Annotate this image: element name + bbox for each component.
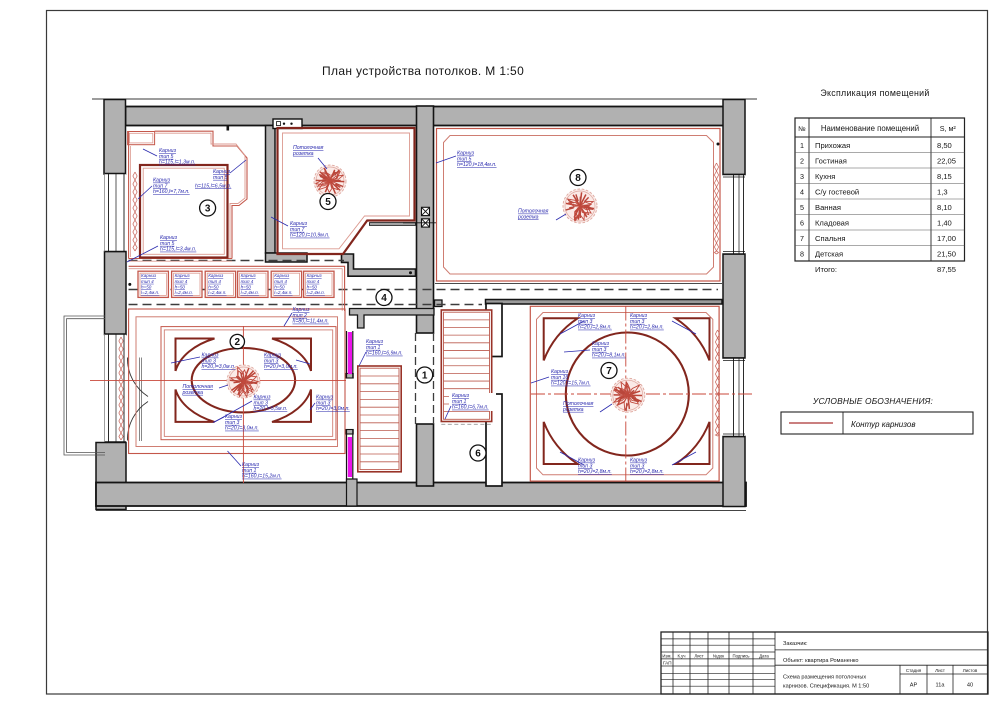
svg-text:Схема размещения потолочных: Схема размещения потолочных	[783, 675, 866, 681]
svg-text:Контур карнизов: Контур карнизов	[851, 420, 916, 429]
svg-text:1,3: 1,3	[937, 188, 948, 197]
svg-text:h=20,l=2,8м.п.: h=20,l=2,8м.п.	[578, 325, 612, 331]
svg-text:11а: 11а	[936, 683, 946, 689]
svg-text:h=50: h=50	[175, 284, 186, 289]
svg-text:8,15: 8,15	[937, 172, 952, 181]
svg-text:1: 1	[800, 141, 804, 150]
svg-text:УСЛОВНЫЕ ОБОЗНАЧЕНИЯ:: УСЛОВНЫЕ ОБОЗНАЧЕНИЯ:	[812, 396, 933, 406]
svg-text:h=20,l=3,0м.п.: h=20,l=3,0м.п.	[316, 406, 350, 412]
svg-text:7: 7	[606, 366, 612, 377]
svg-text:6: 6	[475, 448, 481, 459]
svg-text:Ванная: Ванная	[815, 203, 841, 212]
svg-text:h=160,l=6,9м.п.: h=160,l=6,9м.п.	[366, 351, 403, 357]
svg-text:h=120,l=15,7м.п.: h=120,l=15,7м.п.	[551, 381, 591, 387]
svg-text:Карниз: Карниз	[241, 273, 257, 278]
svg-text:розетка: розетка	[182, 390, 204, 396]
svg-text:тип 5: тип 5	[213, 175, 228, 181]
svg-text:h=20,l=2,8м.п.: h=20,l=2,8м.п.	[578, 469, 612, 475]
svg-text:3: 3	[800, 172, 804, 181]
svg-text:Спальня: Спальня	[815, 234, 846, 243]
svg-text:Дата: Дата	[759, 653, 769, 658]
svg-text:87,55: 87,55	[937, 265, 956, 274]
svg-text:2: 2	[235, 337, 241, 348]
svg-text:h=50: h=50	[241, 284, 252, 289]
svg-text:Наименование помещений: Наименование помещений	[821, 124, 919, 133]
svg-text:Лист: Лист	[935, 668, 945, 673]
svg-text:h=50: h=50	[208, 284, 219, 289]
svg-text:l=2,4м.п.: l=2,4м.п.	[274, 290, 292, 295]
svg-text:h=120,l=18,4м.п.: h=120,l=18,4м.п.	[457, 162, 497, 168]
svg-text:l=2,4м.п.: l=2,4м.п.	[307, 290, 325, 295]
svg-text:h=160,l=6,7м.п.: h=160,l=6,7м.п.	[452, 405, 489, 411]
svg-text:розетка: розетка	[517, 214, 539, 220]
svg-text:4: 4	[800, 188, 804, 197]
svg-text:8,10: 8,10	[937, 203, 952, 212]
svg-text:h=20,l=8,1м.п.: h=20,l=8,1м.п.	[592, 353, 626, 359]
svg-text:h=80,l=11,4м.п.: h=80,l=11,4м.п.	[293, 319, 329, 325]
svg-text:h=20,l=3,0м.п.: h=20,l=3,0м.п.	[202, 364, 236, 370]
svg-text:h=20,l=3,0м.п.: h=20,l=3,0м.п.	[225, 426, 259, 432]
svg-text:S, м²: S, м²	[940, 124, 957, 133]
svg-text:40: 40	[967, 683, 973, 689]
svg-text:Прихожая: Прихожая	[815, 141, 850, 150]
svg-text:h=115,l=3,4м.п.: h=115,l=3,4м.п.	[160, 247, 196, 253]
svg-text:22,05: 22,05	[937, 157, 956, 166]
svg-text:Итого:: Итого:	[815, 265, 837, 274]
svg-text:8: 8	[800, 250, 804, 259]
svg-text:тип 4: тип 4	[141, 279, 154, 284]
svg-text:тип 4: тип 4	[307, 279, 320, 284]
svg-text:розетка: розетка	[292, 151, 314, 157]
svg-text:h=50: h=50	[141, 284, 152, 289]
svg-text:Детская: Детская	[815, 250, 843, 259]
svg-text:h=20,l=2,8м.п.: h=20,l=2,8м.п.	[630, 325, 664, 331]
svg-text:тип 4: тип 4	[208, 279, 221, 284]
svg-text:тип 4: тип 4	[241, 279, 254, 284]
svg-text:h=20,l=5,5м.п.: h=20,l=5,5м.п.	[254, 406, 288, 412]
svg-text:Кухня: Кухня	[815, 172, 835, 181]
svg-text:h=50: h=50	[274, 284, 285, 289]
svg-text:карнизов. Спецификация. М 1:50: карнизов. Спецификация. М 1:50	[783, 684, 869, 690]
svg-text:ГАП: ГАП	[663, 661, 672, 666]
svg-text:h=115,l=1,3м.п.: h=115,l=1,3м.п.	[159, 160, 195, 166]
svg-text:h=20,l=3,0м.п.: h=20,l=3,0м.п.	[264, 364, 298, 370]
svg-text:h=160,l=15,2м.п.: h=160,l=15,2м.п.	[242, 474, 282, 480]
svg-text:5: 5	[800, 203, 804, 212]
svg-text:Карниз: Карниз	[307, 273, 323, 278]
svg-text:№док: №док	[713, 653, 725, 658]
svg-text:Карниз: Карниз	[208, 273, 224, 278]
svg-text:Лист: Лист	[694, 653, 703, 658]
svg-text:К.уч: К.уч	[677, 653, 685, 658]
svg-text:2: 2	[800, 157, 804, 166]
svg-text:Экспликация помещений: Экспликация помещений	[820, 88, 929, 98]
svg-text:5: 5	[325, 197, 331, 208]
svg-text:АР: АР	[910, 683, 918, 689]
svg-text:l=2,4м.п.: l=2,4м.п.	[175, 290, 193, 295]
svg-text:8,50: 8,50	[937, 141, 952, 150]
svg-text:h=115,l=6,5м.п.: h=115,l=6,5м.п.	[195, 183, 231, 189]
svg-text:l=2,4м.п.: l=2,4м.п.	[208, 290, 226, 295]
svg-text:4: 4	[381, 293, 387, 304]
svg-text:h=120,l=10,9м.п.: h=120,l=10,9м.п.	[290, 233, 330, 239]
svg-text:3: 3	[205, 203, 211, 214]
svg-text:1,40: 1,40	[937, 219, 952, 228]
svg-text:розетка: розетка	[562, 407, 584, 413]
svg-text:l=2,4м.п.: l=2,4м.п.	[241, 290, 259, 295]
svg-text:Карниз: Карниз	[274, 273, 290, 278]
svg-text:Стадия: Стадия	[906, 668, 922, 673]
svg-text:Подпись: Подпись	[732, 653, 750, 658]
svg-text:План устройства потолков. М 1:: План устройства потолков. М 1:50	[322, 64, 524, 78]
svg-text:Объект: квартира Романенко: Объект: квартира Романенко	[783, 658, 859, 664]
svg-text:Листов: Листов	[963, 668, 978, 673]
svg-text:l=2,4м.п.: l=2,4м.п.	[141, 290, 159, 295]
svg-text:Карниз: Карниз	[141, 273, 157, 278]
svg-text:тип 4: тип 4	[175, 279, 188, 284]
svg-text:7: 7	[800, 234, 804, 243]
svg-text:h=50: h=50	[307, 284, 318, 289]
svg-text:Кладовая: Кладовая	[815, 219, 849, 228]
svg-text:h=160,l=7,7м.п.: h=160,l=7,7м.п.	[153, 189, 190, 195]
svg-text:21,50: 21,50	[937, 250, 956, 259]
svg-text:С/у гостевой: С/у гостевой	[815, 188, 859, 197]
svg-text:тип 4: тип 4	[274, 279, 287, 284]
svg-text:Карниз: Карниз	[175, 273, 191, 278]
svg-text:№: №	[798, 126, 806, 133]
svg-text:Изм.: Изм.	[662, 653, 671, 658]
svg-text:8: 8	[575, 173, 581, 184]
svg-text:17,00: 17,00	[937, 234, 956, 243]
svg-text:h=20,l=2,8м.п.: h=20,l=2,8м.п.	[630, 469, 664, 475]
svg-text:Гостиная: Гостиная	[815, 157, 847, 166]
svg-text:Заказчик:: Заказчик:	[783, 641, 808, 647]
svg-text:6: 6	[800, 219, 804, 228]
svg-text:1: 1	[422, 370, 428, 381]
